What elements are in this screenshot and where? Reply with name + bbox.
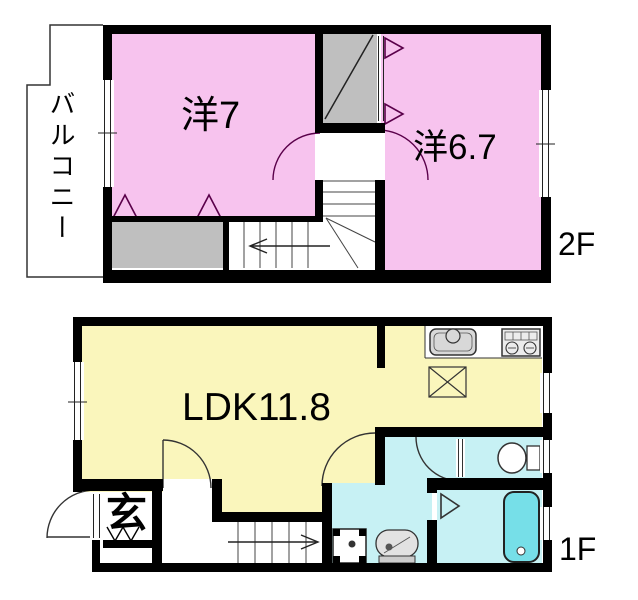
- ldk-label: LDK11.8: [182, 388, 331, 427]
- landing-2f: [315, 133, 385, 180]
- floor-plan-drawing: [0, 0, 638, 600]
- windows-1f-east: [540, 373, 553, 540]
- entrance-label: 玄: [106, 493, 147, 534]
- ldk-door-opening: [163, 479, 212, 492]
- gas-stove: [502, 329, 540, 356]
- floor-1f-label: 1F: [559, 533, 596, 565]
- room-west67-label: 洋6.7: [413, 130, 497, 165]
- washing-machine-pan: [333, 529, 366, 563]
- ldk-fill-bulge: [215, 488, 322, 512]
- kitchen-sink: [430, 329, 476, 355]
- room-west7-label: 洋7: [181, 97, 240, 135]
- balcony-label: バルコニー: [48, 90, 74, 245]
- closet-2f-room1-fill: [112, 222, 223, 268]
- entrance-door-frame: [90, 492, 104, 540]
- wash-basin: [376, 530, 418, 563]
- bathtub: [504, 492, 539, 562]
- toilet: [498, 443, 540, 473]
- floor-plan: バルコニー 洋7 洋6.7 2F LDK11.8 玄 1F: [0, 0, 638, 600]
- floor-2f-label: 2F: [558, 228, 595, 260]
- entrance-door: [47, 490, 95, 538]
